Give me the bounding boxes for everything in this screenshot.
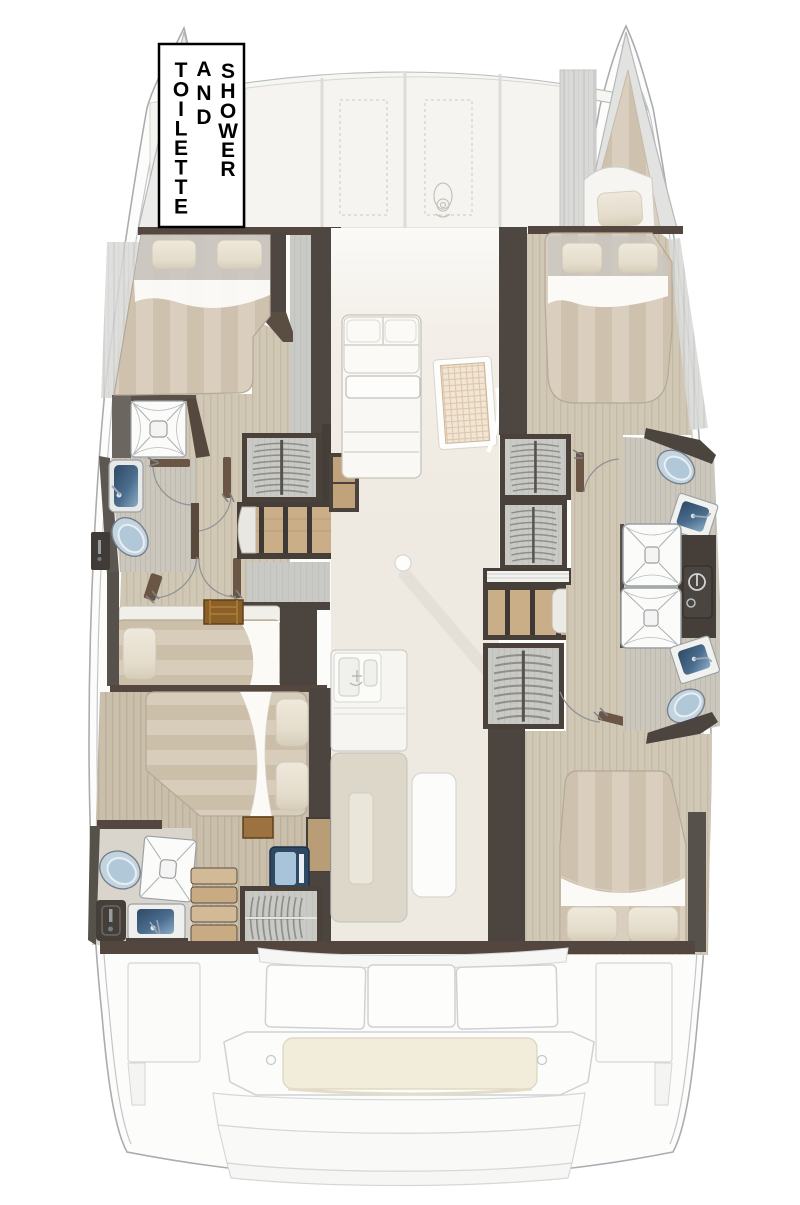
svg-text:R: R [220,158,235,181]
svg-text:A: A [196,58,211,81]
svg-text:E: E [174,196,188,219]
svg-text:N: N [196,82,211,105]
svg-text:D: D [196,106,211,129]
